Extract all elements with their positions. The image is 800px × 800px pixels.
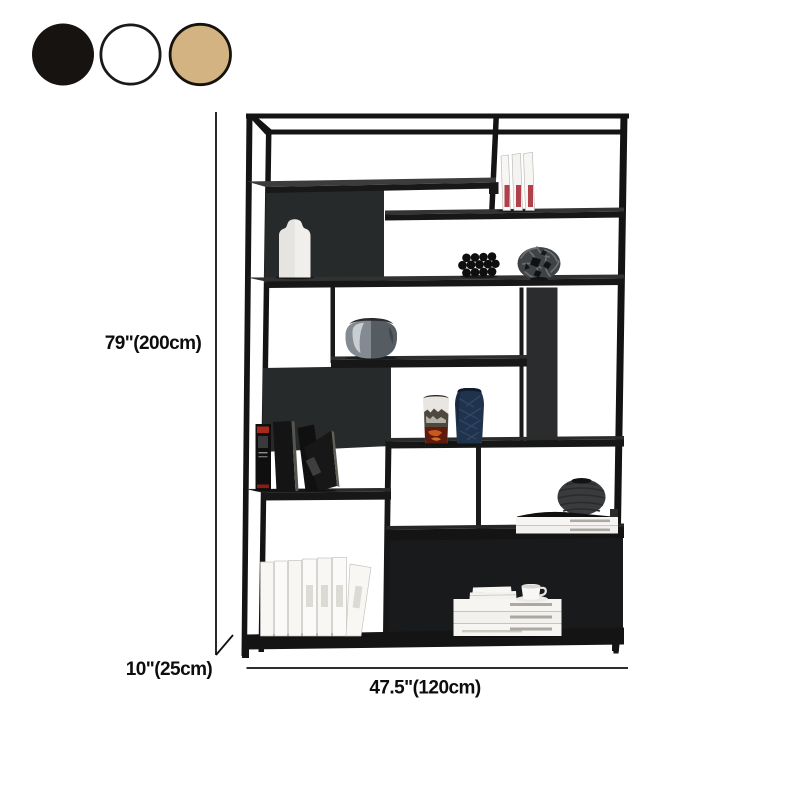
- svg-text:79"(200cm): 79"(200cm): [105, 333, 202, 354]
- svg-text:10"(25cm): 10"(25cm): [126, 659, 213, 680]
- svg-text:47.5"(120cm): 47.5"(120cm): [369, 678, 480, 699]
